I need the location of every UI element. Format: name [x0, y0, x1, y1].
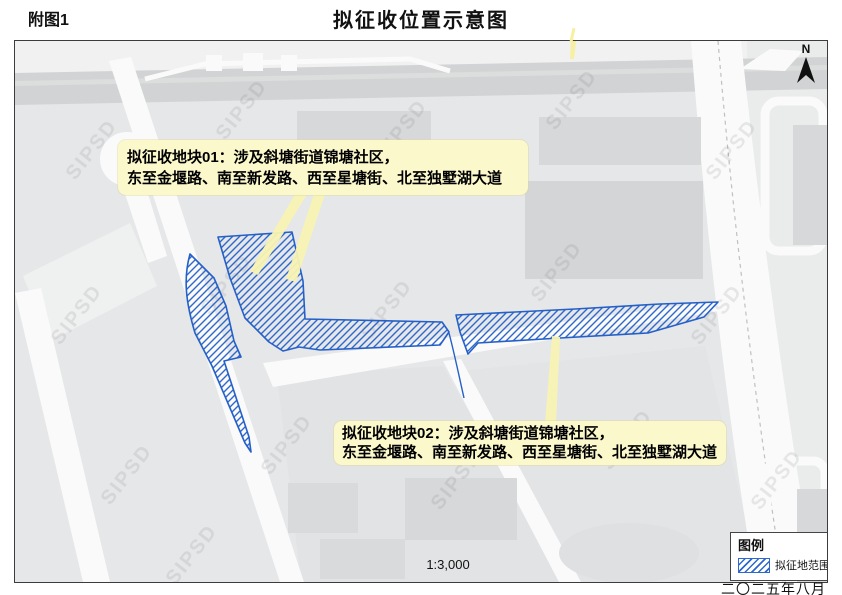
map-canvas: SIPSD SIPSD SIPSD SIPSD SIPSD SIPSD SIPS…: [14, 40, 828, 583]
page-title: 拟征收位置示意图: [0, 4, 842, 33]
building: [793, 125, 827, 245]
callout-zone-02: 拟征收地块02：涉及斜塘街道锦塘社区， 东至金堰路、南至新发路、西至星塘街、北至…: [334, 421, 726, 465]
callout-01-line1: 拟征收地块01：涉及斜塘街道锦塘社区，: [127, 147, 519, 168]
interchange-node: [206, 55, 222, 71]
terrain-blob: [559, 523, 699, 582]
basemap: SIPSD SIPSD SIPSD SIPSD SIPSD SIPSD SIPS…: [15, 41, 827, 582]
callout-02-line2: 东至金堰路、南至新发路、西至星塘街、北至独墅湖大道: [342, 443, 718, 462]
legend-item: 拟征地范围: [738, 557, 828, 573]
map-scale: 1:3,000: [408, 557, 488, 572]
sheet-date: 二〇二五年八月: [721, 579, 826, 595]
hatch-swatch-icon: [738, 558, 770, 573]
building: [288, 483, 358, 533]
legend-box: 图例 拟征地范围: [730, 532, 828, 581]
callout-01-line2: 东至金堰路、南至新发路、西至星塘街、北至独墅湖大道: [127, 168, 519, 189]
building: [320, 539, 405, 579]
interchange-node: [281, 55, 297, 71]
callout-02-line1: 拟征收地块02：涉及斜塘街道锦塘社区，: [342, 424, 718, 443]
sheet: 附图1 拟征收位置示意图: [0, 0, 842, 595]
callout-zone-01: 拟征收地块01：涉及斜塘街道锦塘社区， 东至金堰路、南至新发路、西至星塘街、北至…: [118, 140, 528, 195]
interchange-node: [243, 53, 263, 71]
north-label: N: [802, 42, 811, 56]
legend-item-label: 拟征地范围: [775, 557, 828, 573]
legend-title: 图例: [738, 535, 828, 554]
